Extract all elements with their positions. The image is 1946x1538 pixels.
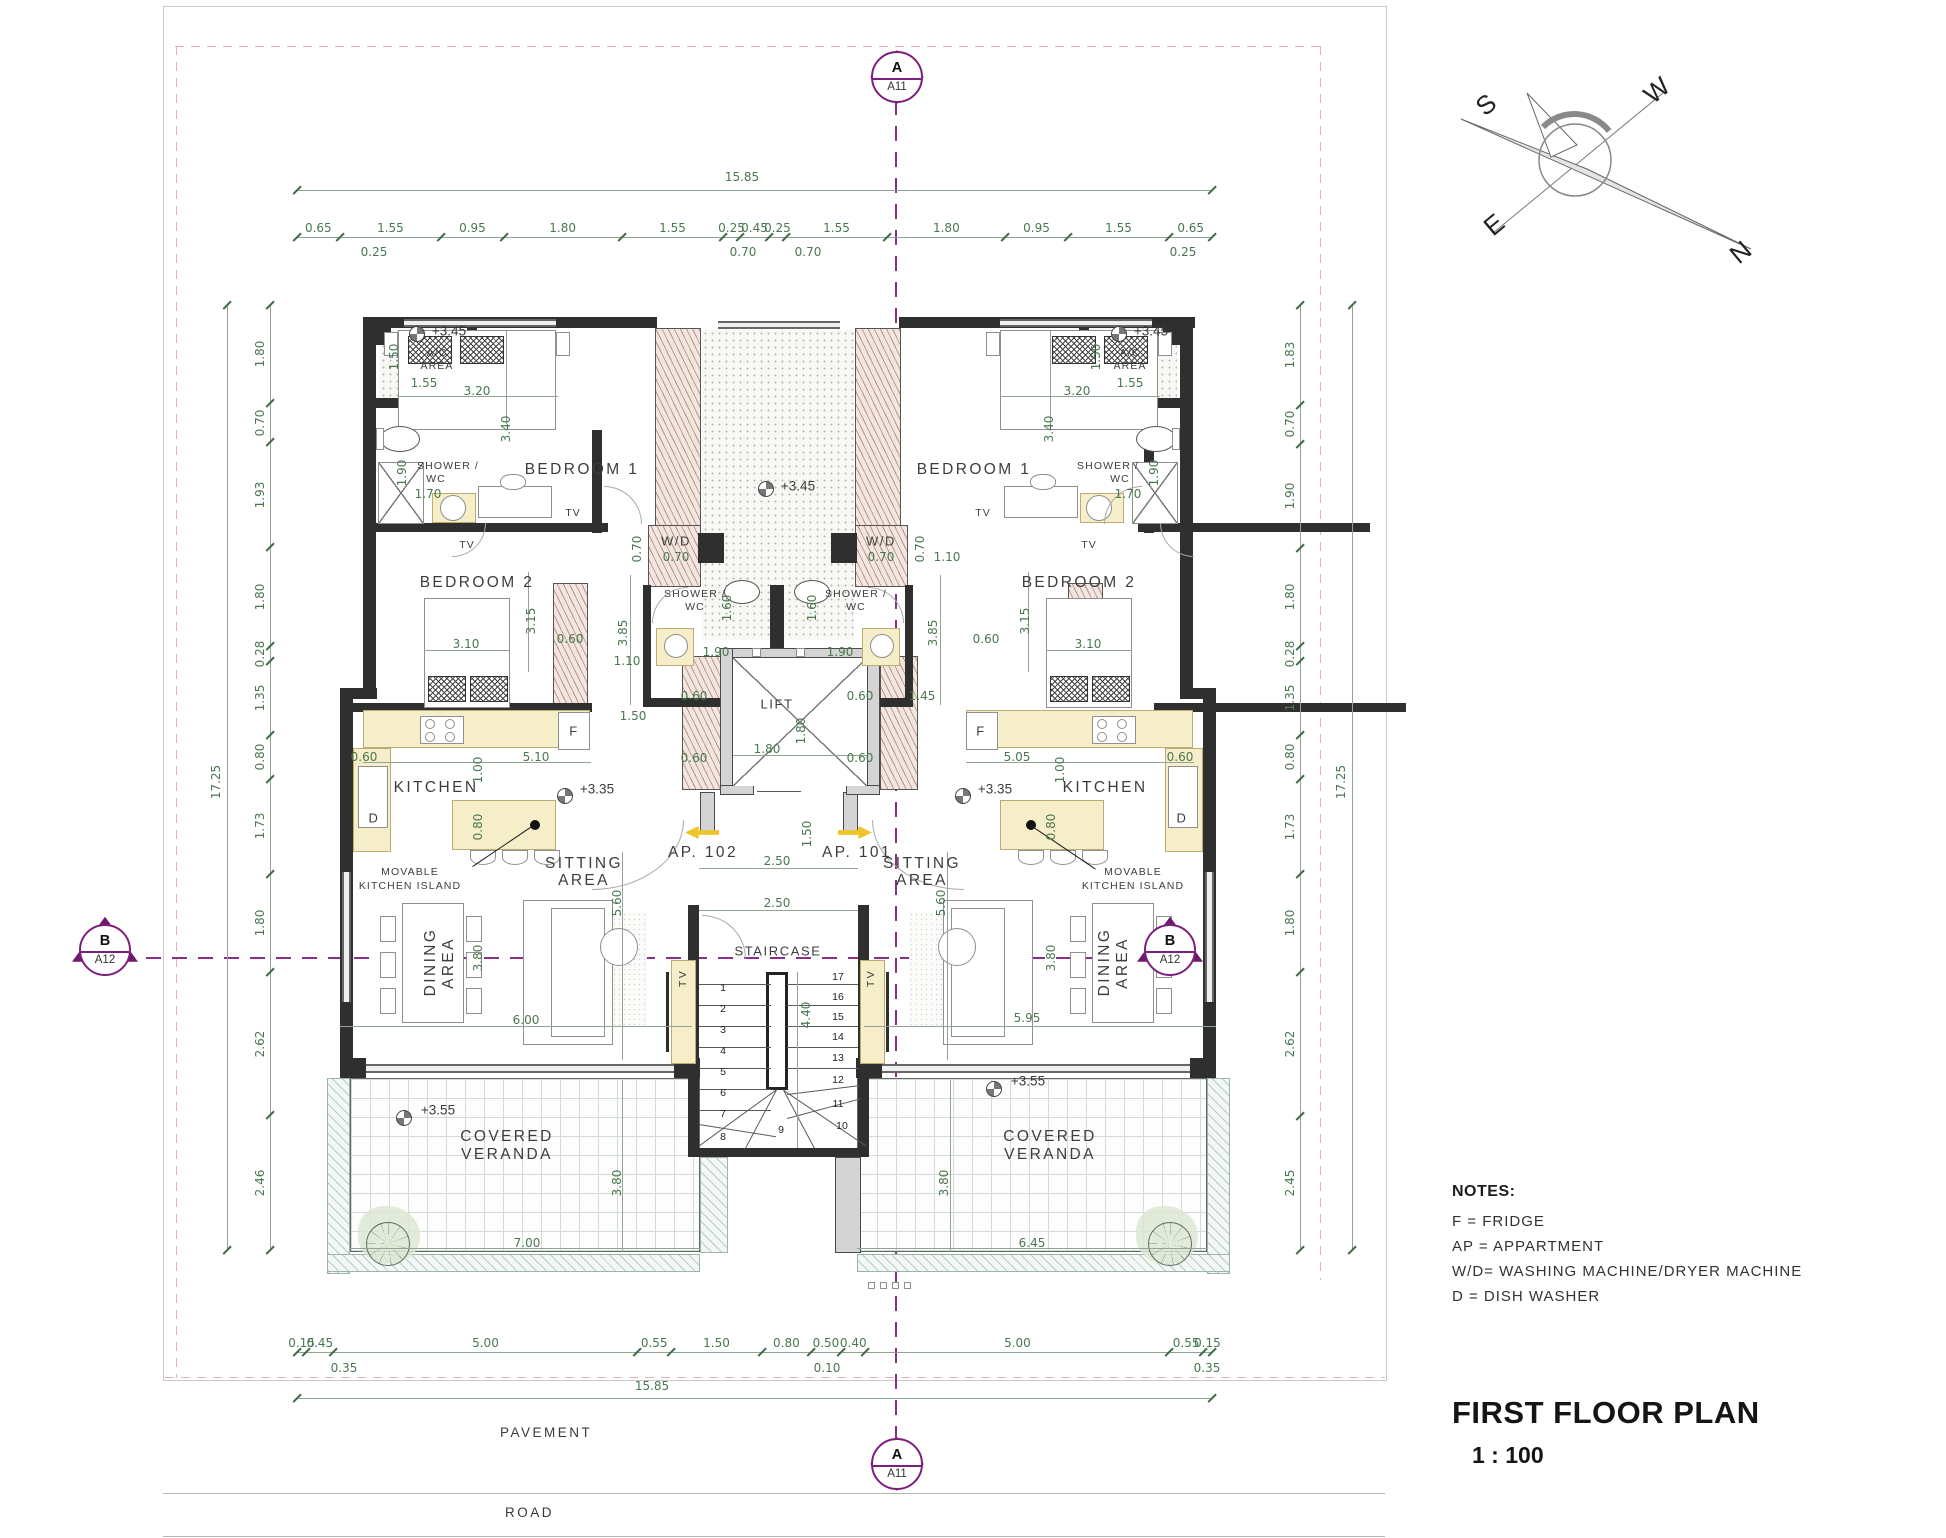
marker-letter: B xyxy=(81,932,129,953)
dim-label: 0.95 xyxy=(1023,221,1050,235)
notes-line: D = DISH WASHER xyxy=(1452,1288,1600,1305)
wall-pier xyxy=(682,656,722,790)
wash-basin xyxy=(664,634,688,658)
dim-label: 3.20 xyxy=(464,384,491,398)
dim-label: 5.95 xyxy=(1014,1011,1041,1025)
marker-bubble: A A11 xyxy=(871,51,923,103)
island-label: MOVABLE xyxy=(1104,866,1162,878)
room-label-bedroom2: BEDROOM 2 xyxy=(420,574,535,592)
dim-label: 5.05 xyxy=(1004,750,1031,764)
room-label-shower: WC xyxy=(426,473,446,485)
dim-label: 5.10 xyxy=(523,750,550,764)
dim-label: 1.55 xyxy=(823,221,850,235)
marker-bubble: B A12 xyxy=(1144,924,1196,976)
dim-line xyxy=(950,1080,951,1252)
dim-label: 1.55 xyxy=(1105,221,1132,235)
dishwasher-label: D xyxy=(369,811,380,826)
dim-label: 1.70 xyxy=(1115,487,1142,501)
dim-label: 0.60 xyxy=(1167,750,1194,764)
dim-label: 3.15 xyxy=(1018,608,1032,635)
dim-chain-left: 1.800.701.931.800.281.350.801.731.802.62… xyxy=(270,305,271,1250)
island-label: KITCHEN ISLAND xyxy=(359,880,461,892)
dim-sub-label: 0.25 xyxy=(1170,245,1197,259)
dim-total-label: 17.25 xyxy=(209,765,223,799)
apartment-number-right: AP. 101 xyxy=(822,844,892,862)
nightstand xyxy=(986,332,1000,356)
toilet-tank xyxy=(1172,428,1180,450)
dim-label: 1.55 xyxy=(659,221,686,235)
dim-label: 1.73 xyxy=(253,813,267,840)
dim-line xyxy=(630,575,631,705)
dim-line xyxy=(699,910,858,911)
room-label-ac: A/C xyxy=(427,347,448,359)
level-label: +3.45 xyxy=(432,324,466,339)
dim-label: 0.60 xyxy=(973,632,1000,646)
room-label-dining: AREA xyxy=(1114,937,1132,989)
drain xyxy=(880,1282,887,1289)
dim-label: 3.10 xyxy=(1075,637,1102,651)
level-symbol xyxy=(1111,326,1127,342)
stair-step xyxy=(699,1005,771,1006)
marker-letter: B xyxy=(1146,932,1194,953)
pavement-label: PAVEMENT xyxy=(500,1425,592,1440)
dim-chain-top: 0.651.550.951.801.550.250.450.251.551.80… xyxy=(297,237,1212,238)
dim-label: 1.10 xyxy=(614,654,641,668)
room-label-shower: WC xyxy=(846,601,866,613)
sliding-window xyxy=(882,1064,1190,1073)
room-label-lift: LIFT xyxy=(760,697,793,712)
stair-number: 10 xyxy=(836,1120,848,1132)
dim-label: 0.25 xyxy=(764,221,791,235)
dim-label: 3.40 xyxy=(1042,416,1056,443)
dim-label: 1.80 xyxy=(549,221,576,235)
dim-label: 0.28 xyxy=(253,640,267,667)
marker-sheet: A12 xyxy=(1160,953,1180,968)
pavement-line xyxy=(163,1493,1385,1494)
plant xyxy=(366,1222,410,1266)
dim-label: 1.80 xyxy=(253,909,267,936)
room-label-bedroom1: BEDROOM 1 xyxy=(917,461,1032,479)
dim-total-line xyxy=(297,190,1212,191)
stair-step xyxy=(699,1089,771,1090)
coffee-table xyxy=(938,928,976,966)
dim-label: 5.00 xyxy=(1004,1336,1031,1350)
room-label-sitting: AREA xyxy=(558,872,610,890)
room-label-kitchen: KITCHEN xyxy=(1063,779,1148,797)
marker-sheet: A12 xyxy=(95,953,115,968)
stair-number: 4 xyxy=(720,1045,726,1057)
drawing-title: FIRST FLOOR PLAN xyxy=(1452,1395,1760,1431)
wall xyxy=(376,523,608,532)
dim-label: 1.55 xyxy=(411,376,438,390)
dim-label: 0.60 xyxy=(557,632,584,646)
dim-label: 4.40 xyxy=(799,1002,813,1029)
dim-label: 0.80 xyxy=(1044,814,1058,841)
drain xyxy=(892,1282,899,1289)
dim-label: 3.20 xyxy=(1064,384,1091,398)
wall-pier xyxy=(855,328,901,532)
desk-chair xyxy=(500,474,526,490)
toilet xyxy=(380,426,420,452)
fridge-label: F xyxy=(569,724,579,739)
burner xyxy=(1117,732,1127,742)
stair-number: 11 xyxy=(833,1098,844,1110)
switch-box xyxy=(796,648,805,657)
pillow xyxy=(470,676,508,702)
plant xyxy=(1148,1222,1192,1266)
dim-label: 0.65 xyxy=(1177,221,1204,235)
setback-line xyxy=(175,46,1321,47)
wall-block xyxy=(831,533,857,563)
wall-pier xyxy=(655,328,701,532)
dim-label: 1.00 xyxy=(1053,757,1067,784)
marker-bubble: B A12 xyxy=(79,924,131,976)
wall-block xyxy=(340,1058,366,1078)
desk xyxy=(478,486,552,518)
notes-line: F = FRIDGE xyxy=(1452,1213,1545,1230)
level-symbol xyxy=(986,1081,1002,1097)
kitchen-counter xyxy=(363,710,590,748)
dim-tick xyxy=(1208,1394,1217,1403)
stair-number: 2 xyxy=(720,1003,726,1015)
sofa xyxy=(551,908,605,1037)
burner xyxy=(1097,732,1107,742)
marker-letter: A xyxy=(873,59,921,80)
lift-wall xyxy=(846,785,880,795)
dim-label: 1.45 xyxy=(909,689,936,703)
stair-step xyxy=(699,1026,771,1027)
dim-label: 1.10 xyxy=(934,550,961,564)
room-label-sitting: AREA xyxy=(896,872,948,890)
dim-line xyxy=(940,575,941,705)
coffee-table xyxy=(600,928,638,966)
dim-label: 6.00 xyxy=(513,1013,540,1027)
wall xyxy=(1180,317,1193,699)
dim-label: 1.83 xyxy=(1283,342,1297,369)
room-label-shower: WC xyxy=(1110,473,1130,485)
level-label: +3.45 xyxy=(781,479,815,494)
dim-label: 2.45 xyxy=(1283,1170,1297,1197)
wall-block xyxy=(1190,1058,1216,1078)
room-label-dining: AREA xyxy=(440,937,458,989)
wall xyxy=(700,792,715,834)
dim-label: 1.80 xyxy=(1283,583,1297,610)
dim-label: 1.50 xyxy=(703,1336,730,1350)
window xyxy=(718,321,840,329)
setback-line xyxy=(165,1377,1385,1378)
dim-label: 1.90 xyxy=(703,645,730,659)
dim-label: 1.35 xyxy=(253,685,267,712)
dim-label: 0.95 xyxy=(459,221,486,235)
dim-sub-label: 0.70 xyxy=(795,245,822,259)
dim-total-line xyxy=(1352,305,1353,1250)
dim-label: 2.46 xyxy=(253,1169,267,1196)
dim-sub-label: 0.70 xyxy=(730,245,757,259)
wall xyxy=(592,430,602,533)
marker-bubble: A A11 xyxy=(871,1438,923,1490)
dim-label: 0.80 xyxy=(471,814,485,841)
dim-line xyxy=(1050,330,1051,424)
room-label-shower: SHOWER / xyxy=(825,588,887,600)
tv-label: TV xyxy=(975,507,991,519)
island-label: MOVABLE xyxy=(381,866,439,878)
dim-label: 3.40 xyxy=(499,416,513,443)
switch-box xyxy=(752,648,761,657)
dim-label: 1.90 xyxy=(827,645,854,659)
stool xyxy=(1018,850,1044,865)
dim-label: 3.80 xyxy=(610,1170,624,1197)
dim-label: 0.70 xyxy=(1283,411,1297,438)
level-symbol xyxy=(955,788,971,804)
tv-screen xyxy=(886,972,889,1052)
dim-label: 3.15 xyxy=(524,608,538,635)
room-label-dining: DINING xyxy=(422,928,440,997)
notes-line: AP = APPARTMENT xyxy=(1452,1238,1604,1255)
dim-sub-label: 0.35 xyxy=(1194,1361,1221,1375)
level-symbol xyxy=(396,1110,412,1126)
dim-label: 1.50 xyxy=(1089,344,1103,371)
wash-basin xyxy=(870,634,894,658)
dim-label: 0.60 xyxy=(681,689,708,703)
dishwasher-label: D xyxy=(1177,811,1188,826)
dim-label: 1.60 xyxy=(720,595,734,622)
dim-line xyxy=(506,330,507,424)
room-label-shower: WC xyxy=(685,601,705,613)
dim-total-label: 15.85 xyxy=(725,170,759,184)
dim-line xyxy=(699,868,858,869)
window xyxy=(1205,872,1214,1002)
tv-label: TV xyxy=(459,539,475,551)
dim-label: 0.70 xyxy=(630,536,644,563)
burner xyxy=(425,719,435,729)
compass-e: E xyxy=(1478,207,1511,241)
tv-label: TV xyxy=(677,969,689,987)
dim-label: 0.55 xyxy=(641,1336,668,1350)
dim-label: 1.35 xyxy=(1283,685,1297,712)
level-label: +3.35 xyxy=(580,782,614,797)
kitchen-counter xyxy=(966,710,1193,748)
dim-label: 3.80 xyxy=(1044,945,1058,972)
veranda-edge-hatch xyxy=(327,1078,350,1274)
veranda-edge-hatch xyxy=(1207,1078,1230,1274)
dim-label: 1.80 xyxy=(933,221,960,235)
room-label-staircase: STAIRCASE xyxy=(734,944,821,959)
level-label: +3.55 xyxy=(421,1103,455,1118)
dim-label: 1.80 xyxy=(253,341,267,368)
chair xyxy=(380,952,396,978)
stair-number: 8 xyxy=(720,1131,726,1143)
level-label: +3.45 xyxy=(1134,324,1168,339)
level-label: +3.35 xyxy=(978,782,1012,797)
island-label: KITCHEN ISLAND xyxy=(1082,880,1184,892)
room-label-sitting: SITTING xyxy=(883,855,961,873)
dim-label: 5.00 xyxy=(472,1336,499,1350)
dim-label: 3.80 xyxy=(937,1170,951,1197)
stool xyxy=(502,850,528,865)
stair-number: 6 xyxy=(720,1087,726,1099)
toilet-tank xyxy=(376,428,384,450)
wall xyxy=(835,1157,861,1253)
room-label-shower: SHOWER / xyxy=(417,460,479,472)
compass-rose-icon: S W E N xyxy=(1455,65,1795,280)
chair xyxy=(1070,916,1086,942)
dim-label: 1.80 xyxy=(1283,910,1297,937)
dim-total-label: 17.25 xyxy=(1334,765,1348,799)
dim-line xyxy=(622,1080,623,1252)
lift-door xyxy=(757,791,801,792)
compass-s: S xyxy=(1470,87,1503,121)
pillow xyxy=(1050,676,1088,702)
dim-chain-bottom: 0.150.455.000.551.500.800.500.405.000.55… xyxy=(297,1352,1212,1353)
dim-label: 2.50 xyxy=(764,854,791,868)
burner xyxy=(1117,719,1127,729)
pillow xyxy=(1092,676,1130,702)
room-label-sitting: SITTING xyxy=(545,855,623,873)
dim-label: 1.93 xyxy=(253,481,267,508)
dim-sub-label: 0.35 xyxy=(331,1361,358,1375)
notes-line: W/D= WASHING MACHINE/DRYER MACHINE xyxy=(1452,1263,1802,1280)
level-label: +3.55 xyxy=(1011,1074,1045,1089)
room-label-veranda: VERANDA xyxy=(1004,1146,1096,1164)
dim-chain-right: 1.830.701.901.800.281.350.801.731.802.62… xyxy=(1300,305,1301,1250)
stair-number: 15 xyxy=(832,1011,844,1023)
drawing-scale: 1 : 100 xyxy=(1472,1442,1544,1469)
dim-label: 1.80 xyxy=(794,718,808,745)
burner xyxy=(425,732,435,742)
window xyxy=(404,319,556,327)
chair xyxy=(380,916,396,942)
chair xyxy=(1070,952,1086,978)
level-symbol xyxy=(409,326,425,342)
dim-label: 0.60 xyxy=(847,751,874,765)
stair-number: 1 xyxy=(720,982,726,994)
dim-label: 7.00 xyxy=(514,1236,541,1250)
room-label-dining: DINING xyxy=(1096,928,1114,997)
setback-line xyxy=(1320,46,1321,1280)
dim-line xyxy=(797,972,798,1148)
room-label-ac: A/C xyxy=(1120,347,1141,359)
stair-spine xyxy=(766,972,788,1090)
wd-label: W/D xyxy=(866,534,896,549)
stair-wall xyxy=(688,1148,869,1157)
dim-label: 1.90 xyxy=(395,460,409,487)
tv-screen xyxy=(666,972,669,1052)
dim-label: 1.50 xyxy=(800,821,814,848)
room-label-bedroom1: BEDROOM 1 xyxy=(525,461,640,479)
dim-total-label: 15.85 xyxy=(635,1379,669,1393)
chair xyxy=(466,988,482,1014)
chair xyxy=(380,988,396,1014)
stair-number: 5 xyxy=(720,1066,726,1078)
dim-label: 1.50 xyxy=(620,709,647,723)
floor-plan-sheet: +3.45 A/C AREA 1.50 1.55 3.20 3.40 BEDRO… xyxy=(0,0,1946,1538)
stair-number: 13 xyxy=(832,1052,844,1064)
dim-label: 3.10 xyxy=(453,637,480,651)
lift-wall xyxy=(720,648,733,795)
dim-line xyxy=(622,852,623,1060)
road-label: ROAD xyxy=(505,1505,554,1520)
level-symbol xyxy=(557,788,573,804)
dim-label: 5.60 xyxy=(934,890,948,917)
level-symbol xyxy=(758,481,774,497)
desk xyxy=(1004,486,1078,518)
fridge-label: F xyxy=(976,724,986,739)
burner xyxy=(445,732,455,742)
chair xyxy=(1070,988,1086,1014)
stair-number: 7 xyxy=(720,1108,726,1120)
stair-number: 17 xyxy=(832,971,844,983)
room-label-veranda: VERANDA xyxy=(461,1146,553,1164)
stair-step xyxy=(699,1068,771,1069)
room-label-ac: AREA xyxy=(1114,360,1147,372)
notes-heading: NOTES: xyxy=(1452,1183,1515,1201)
stair-number: 16 xyxy=(832,991,844,1003)
dim-label: 3.85 xyxy=(616,620,630,647)
burner xyxy=(1097,719,1107,729)
room-label-bedroom2: BEDROOM 2 xyxy=(1022,574,1137,592)
wall xyxy=(643,585,651,707)
tv-label: TV xyxy=(1081,539,1097,551)
dim-label: 1.50 xyxy=(387,344,401,371)
dim-label: 1.55 xyxy=(1117,376,1144,390)
dim-label: 2.62 xyxy=(253,1030,267,1057)
nightstand xyxy=(556,332,570,356)
toilet xyxy=(1136,426,1176,452)
dim-label: 0.80 xyxy=(253,744,267,771)
room-label-ac: AREA xyxy=(421,360,454,372)
stair-step xyxy=(699,984,771,985)
marker-sheet: A11 xyxy=(887,1467,907,1482)
chair xyxy=(1156,988,1172,1014)
chair xyxy=(466,916,482,942)
lift-wall xyxy=(720,785,754,795)
dim-label: 0.50 xyxy=(813,1336,840,1350)
wall xyxy=(363,317,376,699)
dim-total-line xyxy=(297,1398,1212,1399)
dim-label: 1.70 xyxy=(415,487,442,501)
marker-sheet: A11 xyxy=(887,80,907,95)
dim-total-line xyxy=(227,305,228,1250)
apartment-number-left: AP. 102 xyxy=(668,844,738,862)
room-label-kitchen: KITCHEN xyxy=(394,779,479,797)
dim-label: 3.80 xyxy=(471,945,485,972)
room-label-veranda: COVERED xyxy=(460,1128,553,1146)
compass-w: W xyxy=(1638,71,1676,110)
dim-label: 2.50 xyxy=(764,896,791,910)
desk-chair xyxy=(1030,474,1056,490)
dim-label: 1.80 xyxy=(253,583,267,610)
dim-label: 1.73 xyxy=(1283,813,1297,840)
dim-label: 0.70 xyxy=(868,550,895,564)
dim-label: 0.80 xyxy=(1283,744,1297,771)
dim-label: 0.65 xyxy=(305,221,332,235)
kitchen-island xyxy=(452,800,556,850)
dim-label: 1.80 xyxy=(754,742,781,756)
wall xyxy=(843,792,858,834)
lift-wall xyxy=(867,648,880,795)
pillow xyxy=(460,336,504,364)
wash-basin xyxy=(440,495,466,521)
burner xyxy=(445,719,455,729)
dim-label: 2.62 xyxy=(1283,1031,1297,1058)
dim-label: 0.60 xyxy=(351,750,378,764)
stair-number: 12 xyxy=(832,1074,844,1086)
dim-line xyxy=(966,762,1194,763)
dim-label: 1.00 xyxy=(471,757,485,784)
stair-step xyxy=(699,1047,771,1048)
pillow xyxy=(428,676,466,702)
step-hatch xyxy=(700,1157,728,1253)
